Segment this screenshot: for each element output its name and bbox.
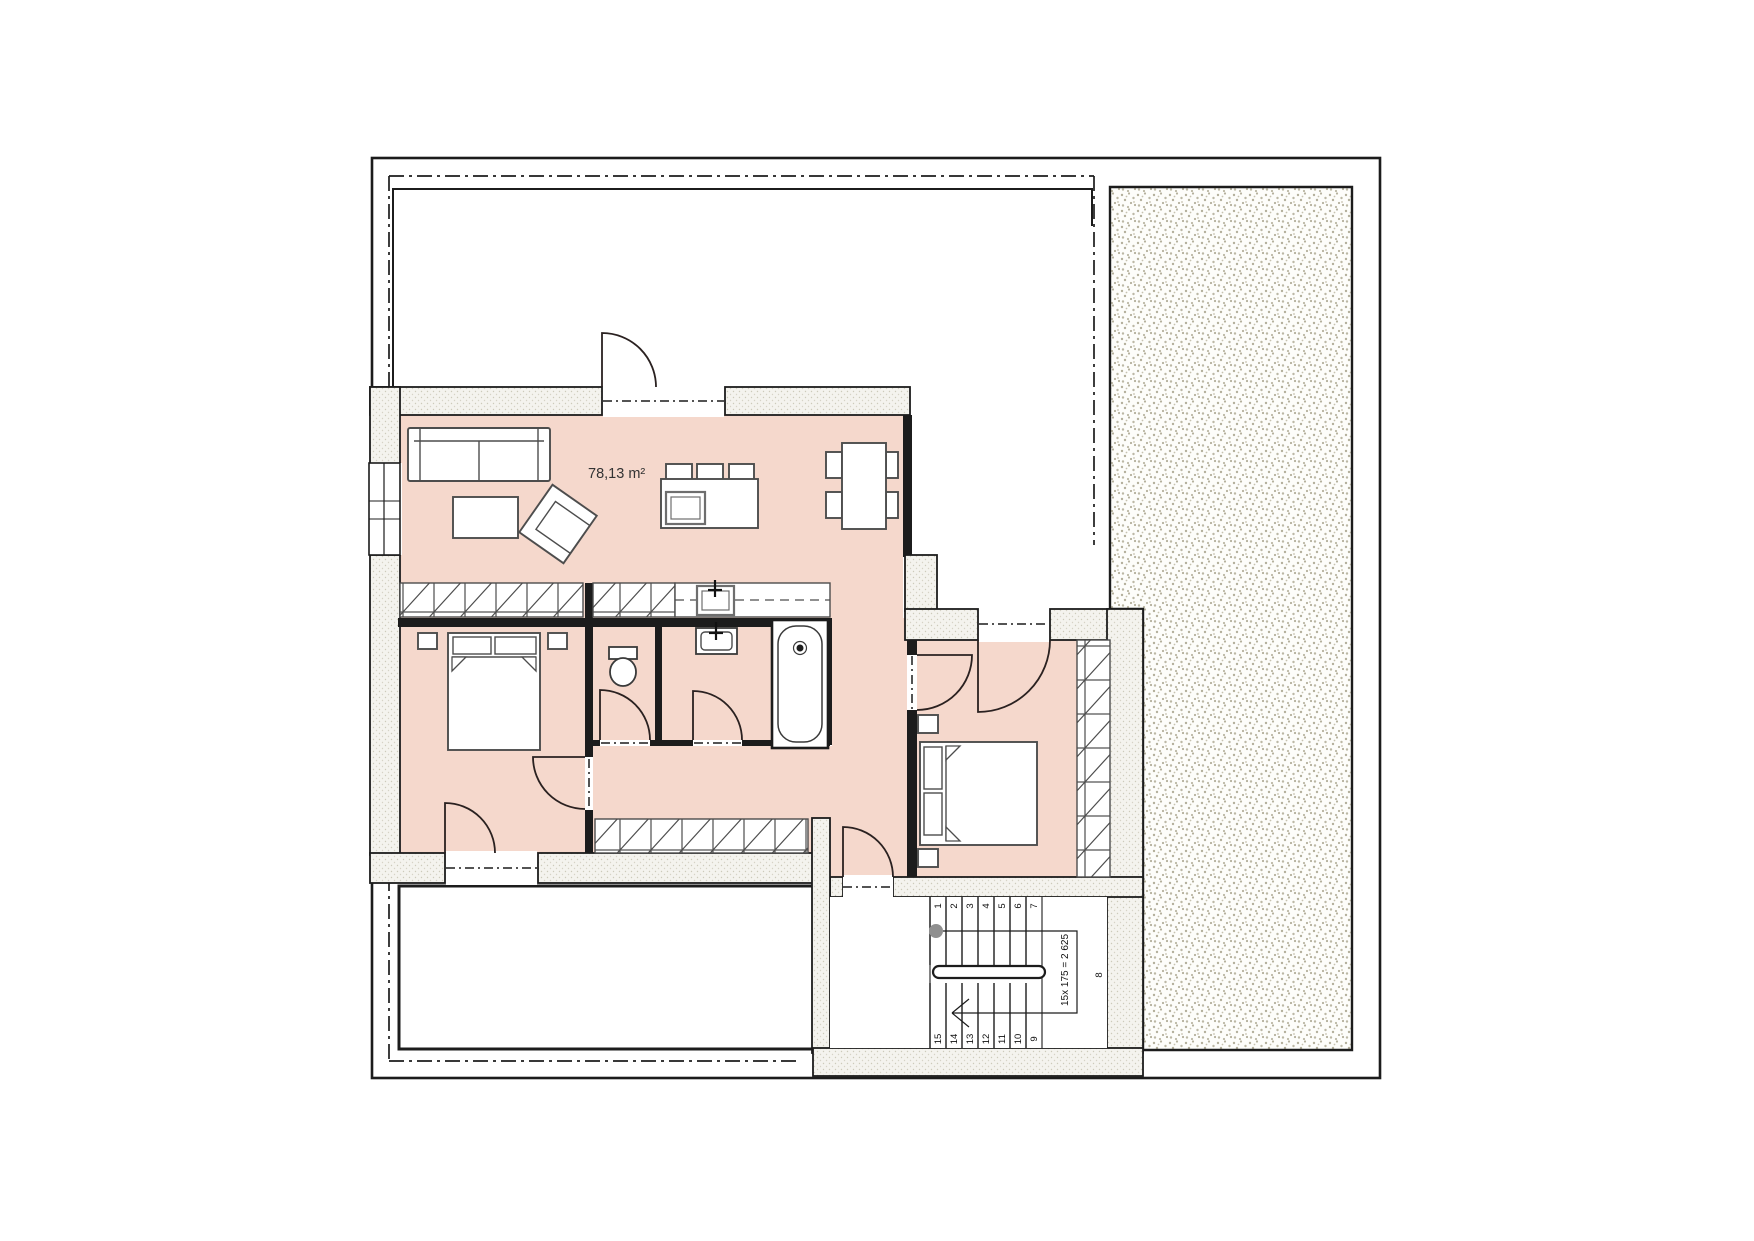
step-number: 10 [1013, 1034, 1024, 1045]
bar-stool [697, 464, 723, 480]
step-number: 7 [1029, 903, 1040, 908]
step-number: 15 [933, 1034, 944, 1045]
toilet [609, 647, 637, 686]
nightstand [918, 849, 938, 867]
bedroom2-north-wall-west [905, 609, 978, 640]
south-wall-mid [538, 853, 813, 883]
vestibule-floor [830, 818, 907, 877]
floor-plan-canvas: 1 2 3 4 5 6 7 15 14 13 12 11 10 9 8 15x … [0, 0, 1754, 1241]
step-number: 1 [933, 903, 944, 908]
coffee-table [453, 497, 518, 538]
step-number: 12 [981, 1034, 992, 1045]
dining-chair [826, 452, 842, 478]
step-number: 9 [1029, 1036, 1040, 1041]
bar-stool [666, 464, 692, 480]
nightstand [418, 633, 437, 649]
west-wall-upper [370, 387, 400, 465]
bed-double [448, 633, 540, 750]
stair-handrail [933, 966, 1045, 978]
step-number: 6 [1013, 903, 1024, 908]
terrace-surface [1110, 187, 1352, 1050]
step-number: 5 [997, 903, 1008, 908]
ne-wall-jog [905, 555, 937, 611]
step-number: 2 [949, 903, 960, 908]
bed-double [920, 742, 1037, 845]
dining-chair [886, 492, 898, 518]
kitchen-cabinet-run [593, 583, 675, 617]
step-number: 4 [981, 903, 992, 908]
lower-roof-area [399, 886, 813, 1049]
staircase: 1 2 3 4 5 6 7 15 14 13 12 11 10 9 8 15x … [830, 897, 1107, 1048]
living-east-wall [903, 415, 912, 557]
sofa [408, 428, 550, 481]
living-cabinet-run [400, 583, 583, 617]
bar-stool [729, 464, 754, 480]
landing-step-number: 8 [1094, 972, 1105, 977]
wet-south-wall-b [650, 740, 693, 746]
north-wall-west-segment [370, 387, 602, 415]
hall-wardrobe [595, 819, 808, 853]
stair-formula: 15x 175 = 2 625 [1060, 934, 1071, 1006]
bedroom2-west-wall-lower [907, 710, 917, 877]
step-number: 3 [965, 903, 976, 908]
wc-bath-divider [655, 627, 662, 740]
dining-chair [886, 452, 898, 478]
bathtub [772, 620, 828, 748]
living-south-wall [398, 618, 832, 627]
wet-south-wall-a [585, 740, 600, 746]
bedroom2-wardrobe [1077, 640, 1110, 877]
hall-floor [593, 746, 907, 818]
walkline-start-dot [929, 924, 943, 938]
east-wall [1107, 609, 1143, 1053]
nightstand [548, 633, 567, 649]
stairwell-west-wall [812, 818, 830, 1053]
vestibule-south-wall-east [893, 877, 1143, 897]
nightstand [918, 715, 938, 733]
bedroom2-west-wall-upper [907, 640, 917, 655]
stair-numbers-lower: 15 14 13 12 11 10 9 [933, 1034, 1040, 1045]
step-number: 13 [965, 1034, 976, 1045]
dining-chair [826, 492, 842, 518]
stairwell-south-wall [813, 1048, 1143, 1076]
bedroom1-east-wall-upper [585, 583, 593, 757]
west-window [366, 463, 402, 555]
north-wall-east-segment [725, 387, 910, 415]
vestibule-south-wall-west [830, 877, 843, 897]
south-wall-west [370, 853, 445, 883]
step-number: 14 [949, 1034, 960, 1045]
kitchen-sink [697, 580, 734, 615]
dining-table [842, 443, 886, 529]
terrace [1110, 187, 1352, 1050]
kitchen-island [661, 464, 758, 528]
west-wall-lower [370, 555, 400, 855]
step-number: 11 [997, 1034, 1008, 1044]
bedroom1-east-wall-lower [585, 810, 593, 853]
stair-numbers-upper: 1 2 3 4 5 6 7 [933, 903, 1040, 908]
area-label: 78,13 m² [588, 466, 645, 482]
drain [797, 645, 804, 652]
